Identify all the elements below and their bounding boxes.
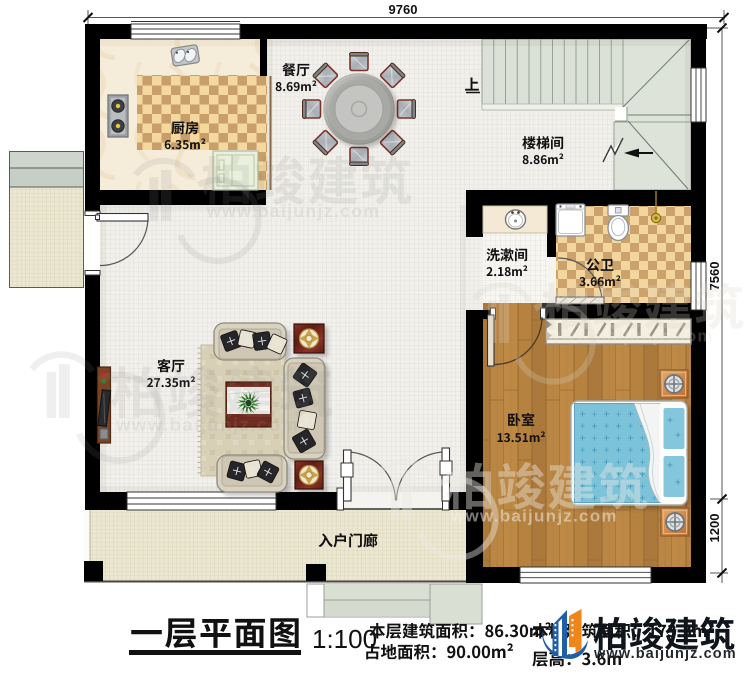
svg-text:www.baijunjz.com: www.baijunjz.com (450, 507, 618, 526)
svg-text:www.baijunjz.com: www.baijunjz.com (206, 201, 380, 221)
svg-text:www.baijunjz.com: www.baijunjz.com (546, 327, 714, 346)
svg-text:1:100: 1:100 (312, 624, 377, 654)
svg-text:1200: 1200 (707, 514, 722, 543)
svg-text:9760: 9760 (389, 2, 418, 17)
svg-text:7560: 7560 (707, 262, 722, 291)
svg-text:www.baijunjz.com: www.baijunjz.com (115, 414, 299, 435)
svg-text:www.baijunjz.com: www.baijunjz.com (593, 646, 737, 662)
